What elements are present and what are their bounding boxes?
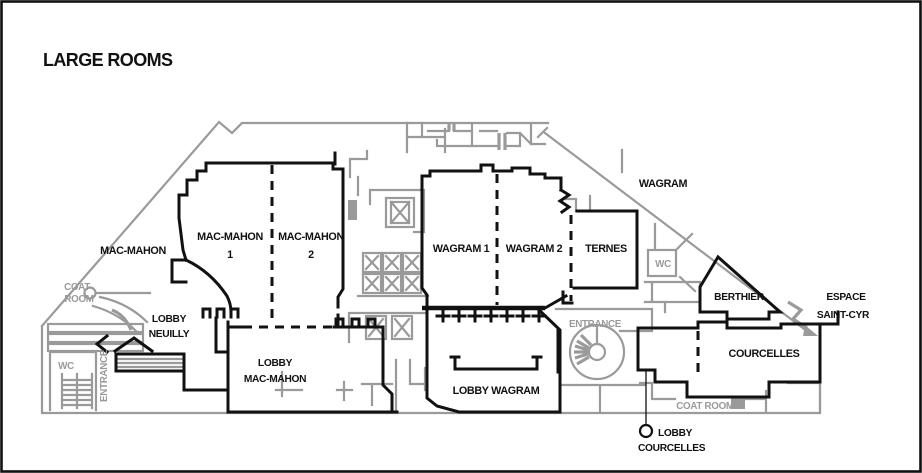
lobby-wagram-counter xyxy=(451,357,541,369)
label-lobby-courcelles-1: LOBBY xyxy=(658,428,693,439)
label-lobby-neuilly-1: LOBBY xyxy=(152,314,187,325)
room-ternes xyxy=(563,211,637,303)
label-courcelles: COURCELLES xyxy=(729,348,800,360)
label-mac-mahon-1-num: 1 xyxy=(227,249,233,261)
elevator-bank-main xyxy=(358,253,428,296)
saint-cyr-arrowhead xyxy=(803,325,818,336)
label-lobby-wagram: LOBBY WAGRAM xyxy=(453,385,540,397)
spiral-staircase xyxy=(570,325,624,379)
label-coat-room-right: COAT ROOM xyxy=(676,401,734,412)
label-lobby-neuilly-2: NEUILLY xyxy=(149,329,190,340)
floor-plan-page: LARGE ROOMS MAC-MAHON MAC-MAHON 1 MAC-MA… xyxy=(0,0,922,473)
building-outline xyxy=(42,122,820,413)
label-entrance-center: ENTRANCE xyxy=(569,319,622,330)
label-lobby-mac-mahon-2: MAC-MAHON xyxy=(244,374,306,385)
label-wc-left: WC xyxy=(58,361,74,372)
label-mac-mahon-1: MAC-MAHON xyxy=(197,231,263,243)
label-wc-right: WC xyxy=(655,259,671,270)
label-saint-cyr: SAINT-CYR xyxy=(817,310,870,321)
label-entrance-left: ENTRANCE xyxy=(99,349,110,402)
label-coat-room-left-2: ROOM xyxy=(64,294,93,305)
label-wagram-street: WAGRAM xyxy=(639,178,688,190)
label-coat-room-left-1: COAT xyxy=(64,282,90,293)
room-berthier xyxy=(700,257,780,319)
labels: LARGE ROOMS MAC-MAHON MAC-MAHON 1 MAC-MA… xyxy=(43,50,870,454)
label-mac-mahon-2-num: 2 xyxy=(308,249,314,261)
label-lobby-mac-mahon-1: LOBBY xyxy=(258,358,293,369)
wc-right-room xyxy=(645,224,700,312)
plan-border xyxy=(2,2,921,472)
elevator-bank-upper xyxy=(348,190,424,232)
floor-plan-svg: LARGE ROOMS MAC-MAHON MAC-MAHON 1 MAC-MA… xyxy=(0,0,922,473)
label-lobby-courcelles-2: COURCELLES xyxy=(638,443,706,454)
page-title: LARGE ROOMS xyxy=(43,50,173,70)
label-mac-mahon-2: MAC-MAHON xyxy=(278,231,344,243)
label-berthier: BERTHIER xyxy=(714,292,765,303)
label-mac-mahon-outside: MAC-MAHON xyxy=(100,245,166,257)
label-wagram-2: WAGRAM 2 xyxy=(506,243,563,255)
lobby-courcelles-callout xyxy=(640,370,652,437)
label-espace: ESPACE xyxy=(826,292,866,303)
label-ternes: TERNES xyxy=(585,243,627,255)
escalator-treads xyxy=(117,359,183,367)
label-wagram-1: WAGRAM 1 xyxy=(433,243,490,255)
